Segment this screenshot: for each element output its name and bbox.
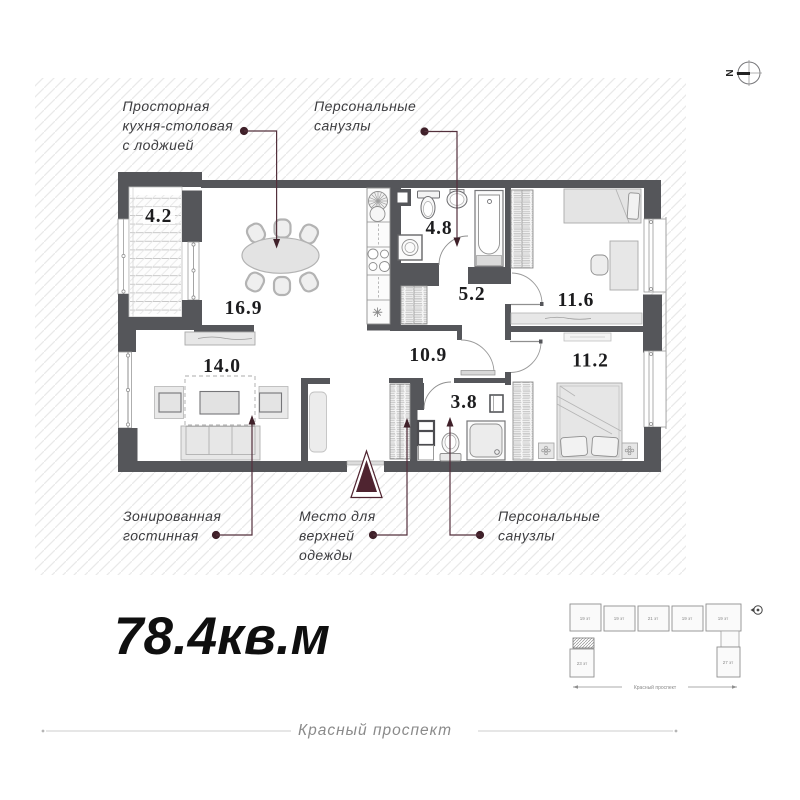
svg-text:10.9: 10.9 [409,345,447,366]
svg-text:3.8: 3.8 [450,392,477,413]
svg-text:кухня-столовая: кухня-столовая [123,117,234,133]
svg-text:19 эт: 19 эт [614,616,625,621]
svg-text:21 эт: 21 эт [648,616,659,621]
svg-text:Красный проспект: Красный проспект [298,722,452,739]
svg-text:Красный проспект: Красный проспект [634,684,677,691]
svg-text:16.9: 16.9 [225,298,263,319]
svg-text:Зонированная: Зонированная [123,508,221,524]
svg-text:5.2: 5.2 [458,284,485,305]
svg-text:14.0: 14.0 [203,356,241,377]
svg-text:Место для: Место для [299,508,376,524]
svg-text:N: N [725,69,736,76]
svg-text:19 эт: 19 эт [682,616,693,621]
svg-text:верхней: верхней [299,527,355,543]
svg-text:санузлы: санузлы [314,117,371,133]
svg-text:Персональные: Персональные [314,98,416,114]
svg-text:19 эт: 19 эт [580,616,591,621]
svg-text:Просторная: Просторная [123,98,210,114]
svg-text:11.6: 11.6 [558,290,595,311]
svg-text:4.2: 4.2 [145,206,172,227]
svg-text:23 эт: 23 эт [577,661,588,666]
svg-text:27 эт: 27 эт [723,660,734,665]
svg-text:78.4кв.м: 78.4кв.м [114,607,330,666]
svg-text:Персональные: Персональные [498,508,600,524]
svg-text:санузлы: санузлы [498,527,555,543]
svg-text:гостинная: гостинная [123,527,199,543]
svg-text:4.8: 4.8 [425,218,452,239]
svg-text:19 эт: 19 эт [718,616,729,621]
svg-text:одежды: одежды [299,547,353,563]
svg-text:с лоджией: с лоджией [123,137,194,153]
svg-text:11.2: 11.2 [572,351,609,372]
